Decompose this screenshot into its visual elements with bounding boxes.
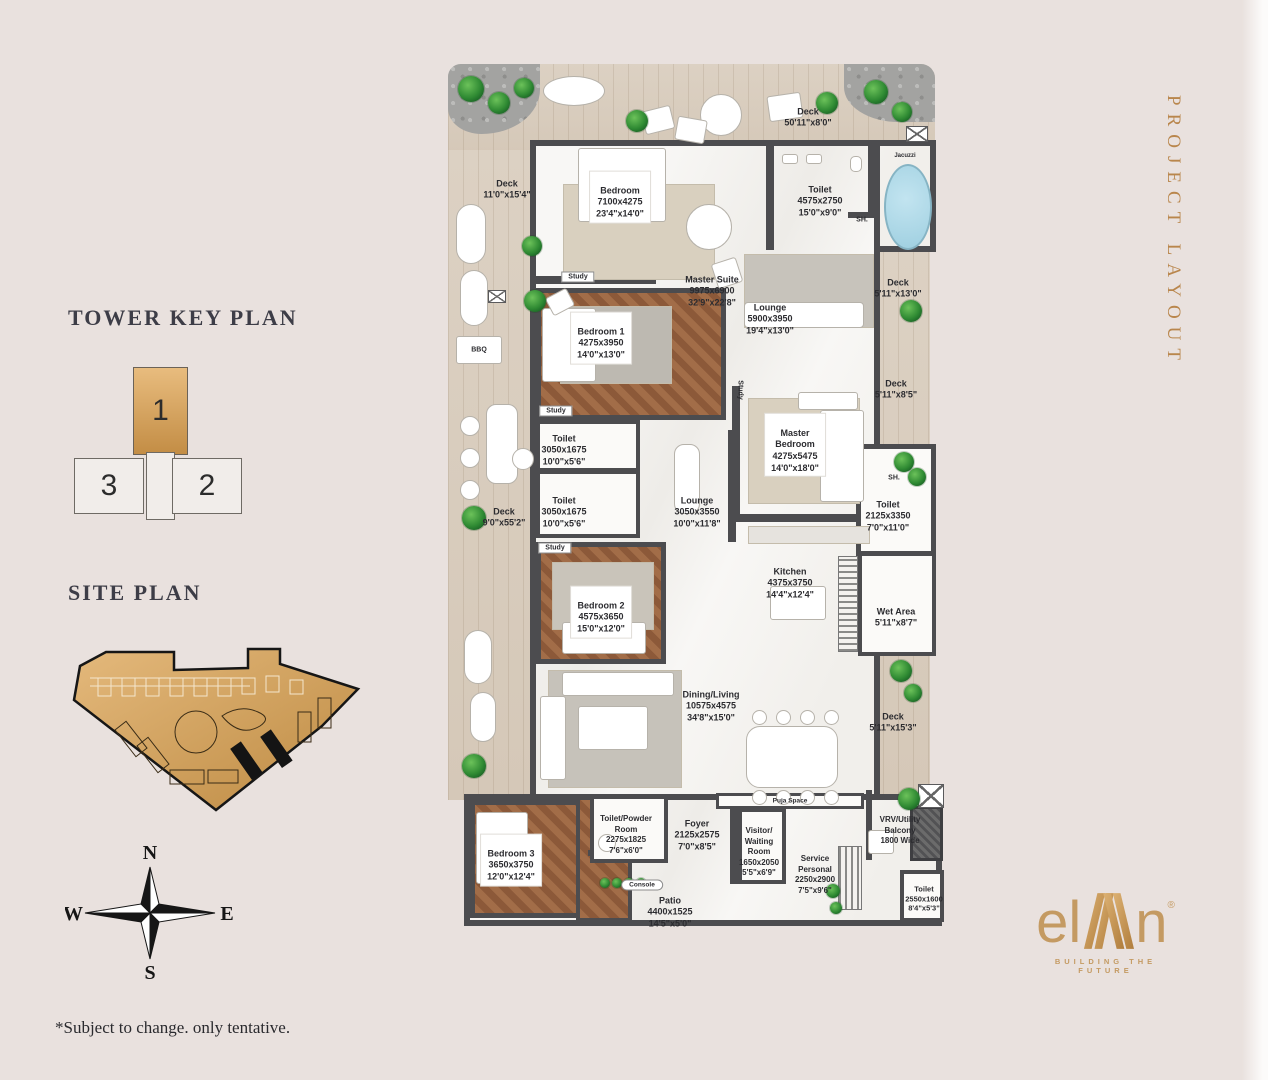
site-plan-boundary [74,649,358,810]
plant-icon [462,754,486,778]
floor-plan: Deck50'11"x8'0" Deck11'0"x15'4" Bedroom7… [448,64,958,932]
tower-unit-2-label: 2 [199,469,216,503]
plant-icon [458,76,484,102]
deck-lounger [470,692,496,742]
window-marker-icon [906,126,928,142]
label-shower-2: SH. [888,475,900,482]
label-puja-space: Puja Space [773,798,808,805]
deck-lounger [464,630,492,684]
toilet-sink [782,154,798,164]
room-label-kitchen: Kitchen4375x375014'4"x12'4" [766,555,814,602]
compass-w-label: W [65,903,83,925]
plant-icon [488,92,510,114]
room-label-deck-left-long: Deck9'0"x55'2" [483,494,526,529]
window-marker-icon [918,784,944,808]
label-study-top: Study [561,272,594,283]
compass-s-label: S [144,962,155,984]
label-study-bedroom1: Study [539,406,572,417]
tower-connector [146,452,175,520]
logo-text-el: el [1036,897,1081,949]
plant-icon [864,80,888,104]
label-bbq: BBQ [471,347,487,354]
plant-icon [892,102,912,122]
deck-chair [674,116,708,145]
deck-lounger [460,270,488,326]
living-sofa-top [562,672,674,696]
disclaimer-text: *Subject to change. only tentative. [55,1018,290,1038]
room-label-toilet-service: Toilet2550x16008'4"x5'3" [905,875,943,914]
dining-chair [752,710,767,725]
room-label-deck-right-3: Deck5'11"x15'3" [869,699,916,734]
deck-chair-round [460,448,480,468]
plant-icon [900,300,922,322]
toilet-sink [806,154,822,164]
breakfast-table [686,204,732,250]
tower-unit-1-label: 1 [152,394,169,428]
room-label-dining-living: Dining/Living10575x457534'8"x15'0" [683,678,740,725]
room-label-bedroom-3: Bedroom 33650x375012'0"x12'4" [481,835,541,886]
room-label-patio: Patio4400x152514'5"x5'0" [647,884,692,931]
master-bed [820,410,864,502]
brand-logo: el n ® BUILDING THE FUTURE [1028,893,1183,975]
site-plan-graphic [62,634,372,824]
deck-chair-round [460,416,480,436]
room-label-master-suite: Master Suite9975x690032'9"x22'8" [685,263,739,310]
plant-icon [514,78,534,98]
plant-icon [524,290,546,312]
logo-registered-mark: ® [1168,900,1175,911]
room-label-visitor: Visitor/ Waiting Room1650x20505'5"x6'9" [739,816,779,878]
room-label-service: Service Personal2250x29007'5"x9'6" [795,844,835,896]
deck-table-oval [543,76,605,106]
stairs-service [838,846,862,910]
label-study-bedroom2: Study [538,543,571,554]
compass-n-label: N [143,845,158,864]
plant-icon [908,468,926,486]
dining-table [746,726,838,788]
room-label-toilet-powder: Toilet/Powder Room2275x18257'6"x6'0" [600,804,652,856]
label-study-master: Study [737,380,744,399]
project-layout-title: PROJECT LAYOUT [1162,95,1184,368]
compass-icon: N E S W [65,845,235,985]
plant-icon [890,660,912,682]
logo-text-n: n [1135,897,1167,949]
wall-segment [766,146,774,250]
plant-icon [600,878,610,888]
living-coffee-table [578,706,648,750]
room-label-vrv: VRV/Utility Balcony1800 Wide [880,805,921,847]
deck-chair-round [512,448,534,470]
tower-key-plan-title: TOWER KEY PLAN [68,305,298,331]
window-marker-icon [488,290,506,303]
tower-unit-1: 1 [133,367,188,455]
jacuzzi-tub [884,164,932,250]
dining-chair [824,710,839,725]
deck-round-table [700,94,742,136]
room-label-master-bedroom: Master Bedroom4275x547514'0"x18'0" [765,414,825,476]
wall-segment [730,808,738,884]
plant-icon [830,902,842,914]
room-label-deck-top: Deck50'11"x8'0" [784,94,831,129]
master-sofa [798,392,858,410]
room-label-toilet-master: Toilet2125x33507'0"x11'0" [865,488,910,535]
kitchen-counter [748,526,870,544]
room-label-deck-right-1: Deck5'11"x13'0" [874,265,921,300]
room-label-lounge-small: Lounge3050x355010'0"x11'8" [673,484,720,531]
compass-e-label: E [220,903,233,925]
deck-lounger [456,204,486,264]
plant-icon [626,110,648,132]
site-plan-title: SITE PLAN [68,580,202,606]
tower-unit-3: 3 [74,458,144,514]
room-label-bedroom-1: Bedroom 14275x395014'0"x13'0" [571,313,631,364]
room-label-toilet-top: Toilet4575x275015'0"x9'0" [797,173,842,220]
page-edge-highlight [1242,0,1268,1080]
room-label-deck-right-2: Deck5'11"x8'5" [875,366,917,401]
wall-segment [732,514,872,522]
wall-segment [728,430,736,542]
logo-tagline: BUILDING THE FUTURE [1028,957,1183,975]
stairs-kitchen [838,556,858,652]
toilet-wc [850,156,862,172]
room-label-toilet-a: Toilet3050x167510'0"x5'6" [541,422,586,469]
dining-chair [800,710,815,725]
tower-unit-2: 2 [172,458,242,514]
dining-chair [752,790,767,805]
deck-chair-round [460,480,480,500]
plant-icon [522,236,542,256]
label-jacuzzi: Jacuzzi [894,153,915,159]
wall-segment [868,146,876,216]
logo-a-glyph-icon [1082,893,1134,949]
tower-unit-3-label: 3 [101,469,118,503]
room-label-wet-area: Wet Area5'11"x8'7" [875,594,917,629]
room-label-lounge: Lounge5900x395019'4"x13'0" [746,291,794,338]
dining-chair [776,710,791,725]
label-shower: SH. [856,217,868,224]
room-label-deck-left-top: Deck11'0"x15'4" [483,166,530,201]
living-sofa-left [540,696,566,780]
room-label-foyer: Foyer2125x25757'0"x8'5" [674,807,719,854]
dining-chair [824,790,839,805]
deck-long-table [486,404,518,484]
room-label-bedroom-2: Bedroom 24575x365015'0"x12'0" [571,587,631,638]
room-label-bedroom: Bedroom7100x427523'4"x14'0" [590,172,650,223]
room-label-toilet-b: Toilet3050x167510'0"x5'6" [541,484,586,531]
